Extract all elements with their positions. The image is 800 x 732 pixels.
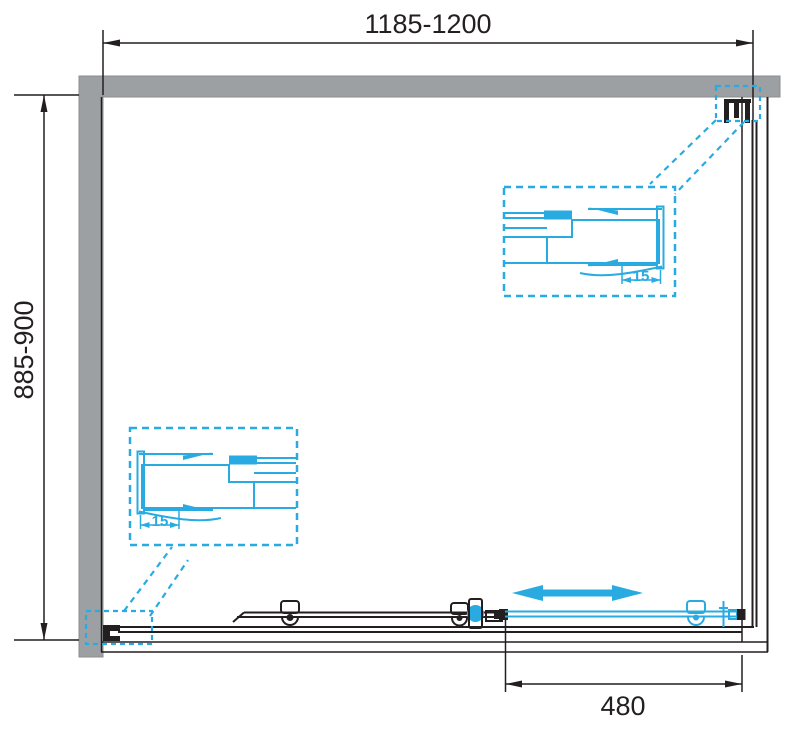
back-wall: [79, 76, 780, 97]
shower-enclosure-plan: 1185-1200 885-900: [0, 0, 800, 732]
carriage-knob: [451, 603, 468, 626]
dimension-top-width: 1185-1200: [103, 9, 753, 122]
side-wall-left: [79, 76, 103, 657]
detail-callout-top: 15: [504, 86, 760, 296]
door-end-cap-right: [737, 609, 746, 620]
left-depth-value: 885-900: [9, 300, 39, 399]
wall-profile-bottom-left: [103, 625, 120, 641]
sliding-door: [499, 601, 746, 627]
top-width-value: 1185-1200: [364, 9, 491, 39]
wall-profile-top-right: [724, 99, 751, 123]
bottom-travel-value: 480: [600, 691, 645, 721]
detail-bottom-adjustment-value: 15: [152, 513, 169, 530]
drawing-canvas: 1185-1200 885-900: [0, 0, 800, 732]
door-knob-black: [281, 601, 299, 625]
dimension-left-depth: 885-900: [9, 95, 79, 640]
door-guide: [719, 601, 728, 627]
fixed-side-panel-right: [742, 97, 768, 652]
dimension-bottom-travel: 480: [506, 618, 743, 721]
bottom-track: [101, 627, 768, 652]
detail-top-adjustment-value: 15: [633, 268, 650, 285]
double-arrow-icon: [512, 585, 643, 601]
roller-carriage: [451, 599, 502, 628]
door-knob-cyan: [687, 601, 705, 625]
